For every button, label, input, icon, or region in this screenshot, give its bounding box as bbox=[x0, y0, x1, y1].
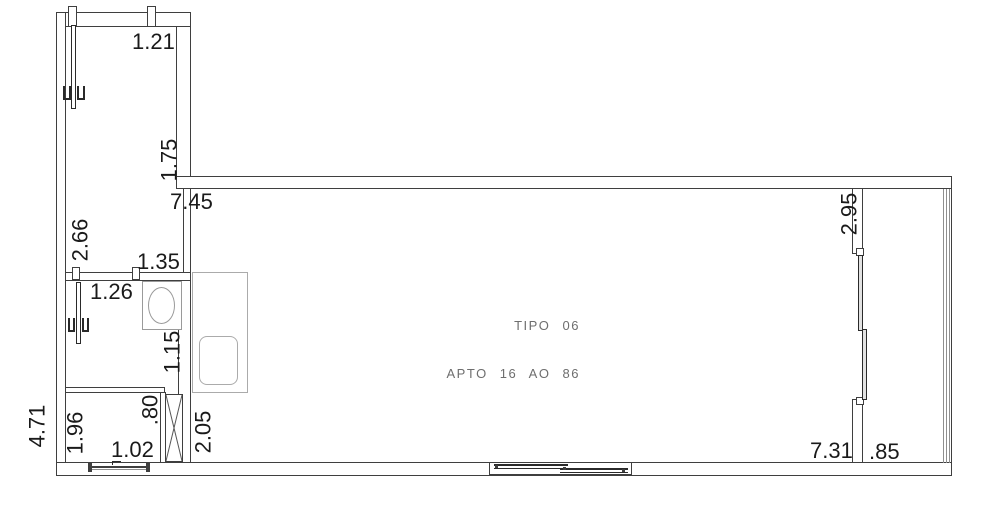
dim-label-entry-depth: 1.75 bbox=[157, 139, 182, 182]
dim-label-bath-width: 1.26 bbox=[90, 279, 133, 304]
entry-door-handle bbox=[63, 86, 71, 100]
wall-cap bbox=[147, 6, 156, 27]
sliding-window-sash bbox=[494, 464, 568, 469]
duct-shaft bbox=[165, 394, 183, 462]
entry-door-panel bbox=[71, 25, 76, 109]
balcony-glazing-line bbox=[946, 189, 947, 463]
wall-left-outer bbox=[56, 12, 66, 476]
window-post bbox=[146, 463, 150, 472]
balcony-glazing-line bbox=[943, 189, 944, 463]
bathroom-door-handle bbox=[68, 318, 75, 332]
wall-cap bbox=[72, 267, 80, 280]
dim-label-entry-width: 1.21 bbox=[132, 29, 175, 54]
wall-balcony-lower bbox=[852, 399, 863, 463]
balcony-sliding-door-panel bbox=[858, 255, 863, 331]
wall-top-main bbox=[176, 176, 952, 189]
dim-label-bath-depth: 1.15 bbox=[160, 331, 185, 374]
dim-label-bath-top: 1.35 bbox=[137, 249, 180, 274]
dim-label-laundry-depth: 1.96 bbox=[63, 412, 88, 455]
apartment-number-label: APTO 16 AO 86 bbox=[447, 366, 580, 382]
window-sash bbox=[92, 466, 146, 468]
window-handle-dot bbox=[563, 467, 566, 470]
dim-label-laundry-width: 1.02 bbox=[111, 437, 154, 462]
entry-door-handle bbox=[77, 86, 85, 100]
bathroom-door-handle bbox=[82, 318, 89, 332]
apartment-label: TIPO 06 APTO 16 AO 86 bbox=[447, 286, 580, 414]
floor-plan: 1.21 7.45 1.35 1.26 1.02 7.31 .85 1.75 2… bbox=[0, 0, 996, 512]
balcony-glazing-line bbox=[951, 189, 952, 463]
dim-label-door-opening: .80 bbox=[138, 395, 163, 426]
kitchen-sink bbox=[199, 336, 238, 385]
apartment-type-label: TIPO 06 bbox=[447, 318, 580, 334]
balcony-glazing-line bbox=[949, 189, 950, 463]
balcony-sliding-door-panel bbox=[862, 329, 867, 400]
window-handle-dot bbox=[622, 469, 625, 472]
duct-shaft-cross-icon bbox=[166, 395, 182, 461]
dim-label-main-bottom: 7.31 bbox=[810, 438, 853, 463]
sliding-window-sash bbox=[560, 468, 628, 473]
washbasin bbox=[148, 287, 175, 324]
window-sash bbox=[92, 469, 146, 470]
wall-cap bbox=[68, 6, 77, 27]
dim-label-balcony-depth: 2.95 bbox=[837, 193, 862, 236]
dim-label-left-overall: 4.71 bbox=[25, 405, 50, 448]
wall-bathroom-bottom bbox=[65, 387, 165, 393]
bathroom-door-panel bbox=[76, 282, 81, 344]
window-handle-dot bbox=[495, 465, 498, 468]
dim-label-kitchen-depth: 2.05 bbox=[191, 411, 216, 454]
dim-label-hall-depth: 2.66 bbox=[68, 219, 93, 262]
dim-label-main-top: 7.45 bbox=[170, 189, 213, 214]
dim-label-balcony-width: .85 bbox=[869, 439, 900, 464]
